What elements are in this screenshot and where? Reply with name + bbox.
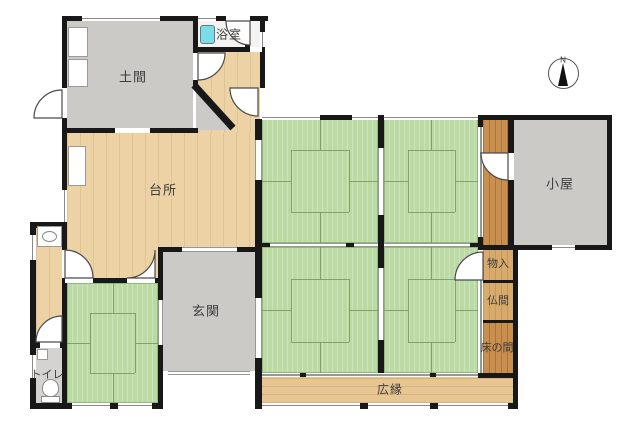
- compass-north-letter: N: [560, 56, 566, 65]
- doma-cabinet-upper: [68, 27, 88, 57]
- bathtub: [200, 25, 215, 44]
- shed-label: 小屋: [546, 174, 574, 193]
- door-arc-closet: [455, 252, 483, 280]
- doma-label: 土間: [119, 67, 147, 86]
- diagonal-wall: [194, 85, 233, 128]
- butsuma-label: 仏間: [487, 292, 509, 308]
- tokonoma-label: 床の間: [481, 339, 514, 355]
- door-arc-kitchen-tatami: [127, 250, 155, 278]
- toilet-tank: [41, 396, 60, 403]
- doma-cabinet-lower: [68, 59, 88, 87]
- kitchen-counter: [68, 146, 86, 186]
- toilet-label: トイレ: [31, 366, 64, 382]
- door-arc-kitchen-west: [65, 250, 93, 278]
- door-arc-toilet: [36, 316, 62, 342]
- kitchen-label: 台所: [149, 180, 177, 199]
- washbasin-bowl: [42, 231, 57, 242]
- floor-plan: N 土間 浴室 台所 玄関 トイレ 小屋 物入 仏間 床の間 広縁: [0, 0, 640, 430]
- door-arc-doma-entrance: [34, 90, 62, 118]
- door-swing-arcs: [0, 0, 640, 430]
- veranda-label: 広縁: [377, 381, 403, 398]
- bathroom-label: 浴室: [216, 26, 242, 43]
- genkan-label: 玄関: [192, 301, 220, 320]
- door-arc-doma-corridor: [198, 53, 225, 80]
- toilet-hand-sink: [37, 349, 48, 360]
- door-arc-corridor-kitchen: [230, 88, 258, 116]
- door-arc-shed: [481, 153, 508, 180]
- closet-label: 物入: [487, 255, 509, 271]
